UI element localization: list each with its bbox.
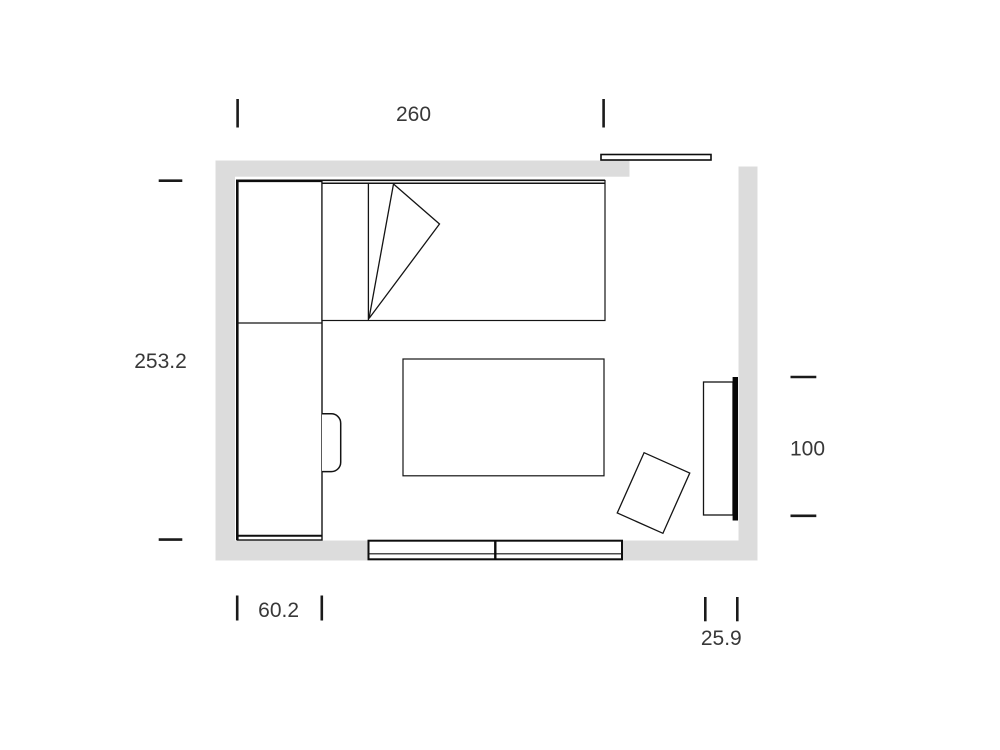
svg-text:253.2: 253.2 bbox=[134, 350, 187, 373]
svg-text:60.2: 60.2 bbox=[258, 599, 299, 622]
svg-text:100: 100 bbox=[790, 438, 825, 461]
svg-text:25.9: 25.9 bbox=[701, 627, 742, 650]
svg-text:260: 260 bbox=[396, 103, 431, 126]
